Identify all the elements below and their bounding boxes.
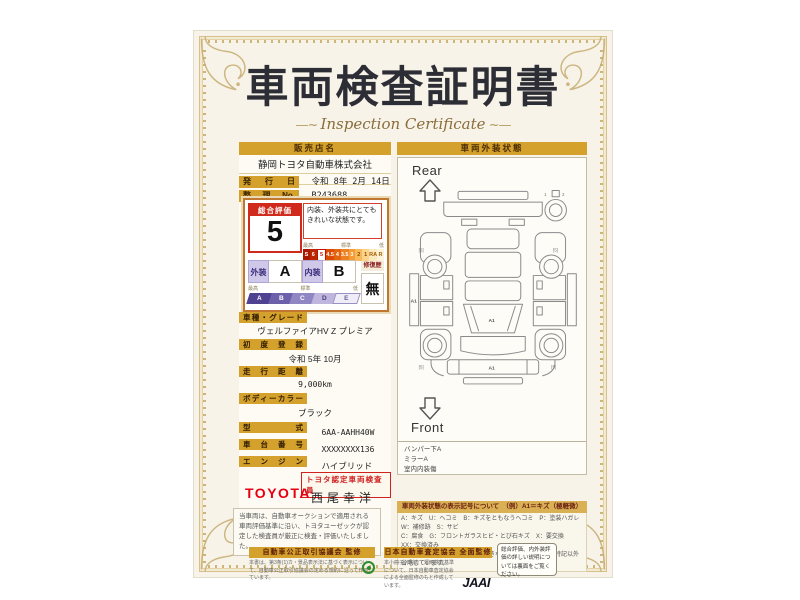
overall-rating-value: 5 [250, 216, 300, 249]
subtitle-flourish-left: —~ [295, 118, 320, 133]
legend-header: 車両外装状態の表示記号について （例）A1＝キズ（極軽微） [397, 501, 587, 513]
page-title: 車両検査証明書 [194, 53, 612, 115]
scale-low-label: 低 [353, 286, 358, 292]
jaai-text: 本小冊子・別表・運用検査基準について、日本自動車査定協会による全面監修のもと作成… [384, 560, 456, 590]
tread-label: [6] [419, 247, 424, 252]
field-body-color-label: ボディーカラー [239, 393, 307, 404]
certificate-page: 車両検査証明書 —~ Inspection Certificate ~— 販売店… [193, 30, 613, 578]
field-first-registration-value: 令和 5年 10月 [239, 353, 391, 365]
inspector-name: 西尾幸洋 [311, 489, 375, 506]
interior-label: 内装 [302, 260, 323, 283]
down-arrow-icon [418, 396, 442, 420]
fair-trade-council-box: 自動車公正取引協議会 監修 本書は、第3条(1)カ・景品表示法に基づく表示につい… [249, 547, 375, 583]
spare-label: 1 [544, 192, 547, 197]
damage-note: バンパー下A [404, 445, 441, 455]
tread-label: [5] [419, 365, 424, 370]
damage-mark: A1 [489, 318, 496, 324]
field-model-grade-label: 車種・グレード [239, 312, 307, 323]
exterior-condition-panel: 車両外装状態 Rear [397, 142, 587, 544]
field-model-code-value: 6AA-AAHH40W [321, 428, 374, 437]
page-subtitle: —~ Inspection Certificate ~— [194, 115, 612, 133]
rear-label: Rear [412, 163, 442, 178]
front-label: Front [411, 420, 444, 435]
field-engine-value: ハイブリッド [321, 461, 372, 471]
subtitle-flourish-right: ~— [486, 118, 511, 133]
exterior-grade: A [269, 260, 302, 283]
numeric-scale: 最高 標準 低 S 6 5 4.5 4 3.5 3 2 1 RA R [303, 243, 384, 261]
overall-rating-label: 総合評価 [250, 205, 300, 216]
vehicle-info-panel: 販売店名 静岡トヨタ自動車株式会社 発行日 令和 8年 2月 14日 整理No.… [239, 142, 391, 552]
scale-cell: RA [369, 249, 377, 261]
field-model-code-row: 型式 6AA-AAHH40W [239, 422, 391, 435]
repair-history-label: 修復歴 [361, 261, 384, 271]
scale-cell: R [377, 249, 384, 261]
interior-grade: B [323, 260, 356, 283]
grade-row: 外装 A 内装 B [248, 260, 356, 283]
letter-scale-labels: 最高 標準 低 [248, 286, 358, 292]
field-body-color-value: ブラック [239, 407, 391, 419]
damage-mark: A1 [489, 366, 496, 372]
issue-date-row: 発行日 令和 8年 2月 14日 [239, 171, 391, 185]
scale-high-label: 最高 [248, 286, 258, 292]
damage-mark: A1 [411, 298, 418, 304]
field-chassis-no-row: 車台番号 XXXXXXXX136 [239, 439, 391, 452]
scale-cell: 1 [362, 249, 369, 261]
field-engine-row: エンジン ハイブリッド [239, 456, 391, 469]
rating-box: 総合評価 5 内装、外装共にとてもきれいな状態です。 最高 標準 低 S 6 5… [243, 198, 389, 312]
council-seal-icon [362, 561, 375, 574]
jaai-logo: JAAI [462, 575, 490, 590]
tread-label: [5] [553, 247, 558, 252]
damage-notes: バンパー下A ミラーA 室内内装傷 [404, 445, 441, 474]
border-lace-top [208, 40, 598, 43]
back-side-note: 総合評価、内外装評価の詳しい説明については裏面をご覧ください。 [497, 543, 557, 576]
field-chassis-no-value: XXXXXXXX136 [321, 445, 374, 454]
exterior-label: 外装 [248, 260, 269, 283]
field-model-grade-value: ヴェルファイアHV Z プレミア [239, 325, 391, 337]
tread-label: [5] [551, 365, 556, 370]
repair-history-value: 無 [361, 273, 384, 304]
scale-mid-label: 標準 [300, 286, 310, 292]
field-mileage-label: 走行距離 [239, 366, 307, 377]
spare-label: 2 [562, 192, 565, 197]
field-mileage-value: 9,000km [239, 380, 391, 389]
ref-no-row: 整理No. B243688 [239, 185, 391, 199]
overall-rating-box: 総合評価 5 [248, 203, 302, 253]
letter-scale-cells: A B C D E [248, 293, 358, 304]
field-model-code-label: 型式 [239, 422, 307, 433]
jaai-box: 日本自動車査定協会 全面監修 本小冊子・別表・運用検査基準について、日本自動車査… [384, 547, 492, 590]
car-diagram-box: Rear [397, 157, 587, 475]
rating-comment: 内装、外装共にとてもきれいな状態です。 [303, 203, 382, 239]
exterior-condition-header: 車両外装状態 [397, 142, 587, 155]
notes-divider [398, 441, 586, 442]
jaai-header: 日本自動車査定協会 全面監修 [384, 547, 492, 558]
fair-trade-text: 本書は、第3条(1)カ・景品表示法に基づく表示について、自動車公正取引協議会の定… [249, 560, 375, 583]
damage-note: 室内内装傷 [404, 465, 441, 475]
letter-scale: 最高 標準 低 A B C D E [248, 286, 358, 304]
subtitle-text: Inspection Certificate [320, 115, 485, 133]
field-chassis-no-label: 車台番号 [239, 439, 307, 450]
scale-cell: E [333, 293, 361, 304]
scale-cell: 2 [355, 249, 362, 261]
field-first-registration-label: 初度登録 [239, 339, 307, 350]
fair-trade-header: 自動車公正取引協議会 監修 [249, 547, 375, 558]
dealer-header: 販売店名 [239, 142, 391, 155]
car-top-view-diagram: A1 A1 A1 [6] [5] [5] [5] 1 2 [402, 186, 584, 392]
damage-note: ミラーA [404, 455, 441, 465]
field-engine-label: エンジン [239, 456, 307, 467]
toyota-logo: TOYOTA [245, 485, 311, 501]
legend-line: A：キズ U：ヘコミ B：キズをともなうヘコミ P：塗装ハガレ W：補修跡 S：… [401, 515, 583, 533]
